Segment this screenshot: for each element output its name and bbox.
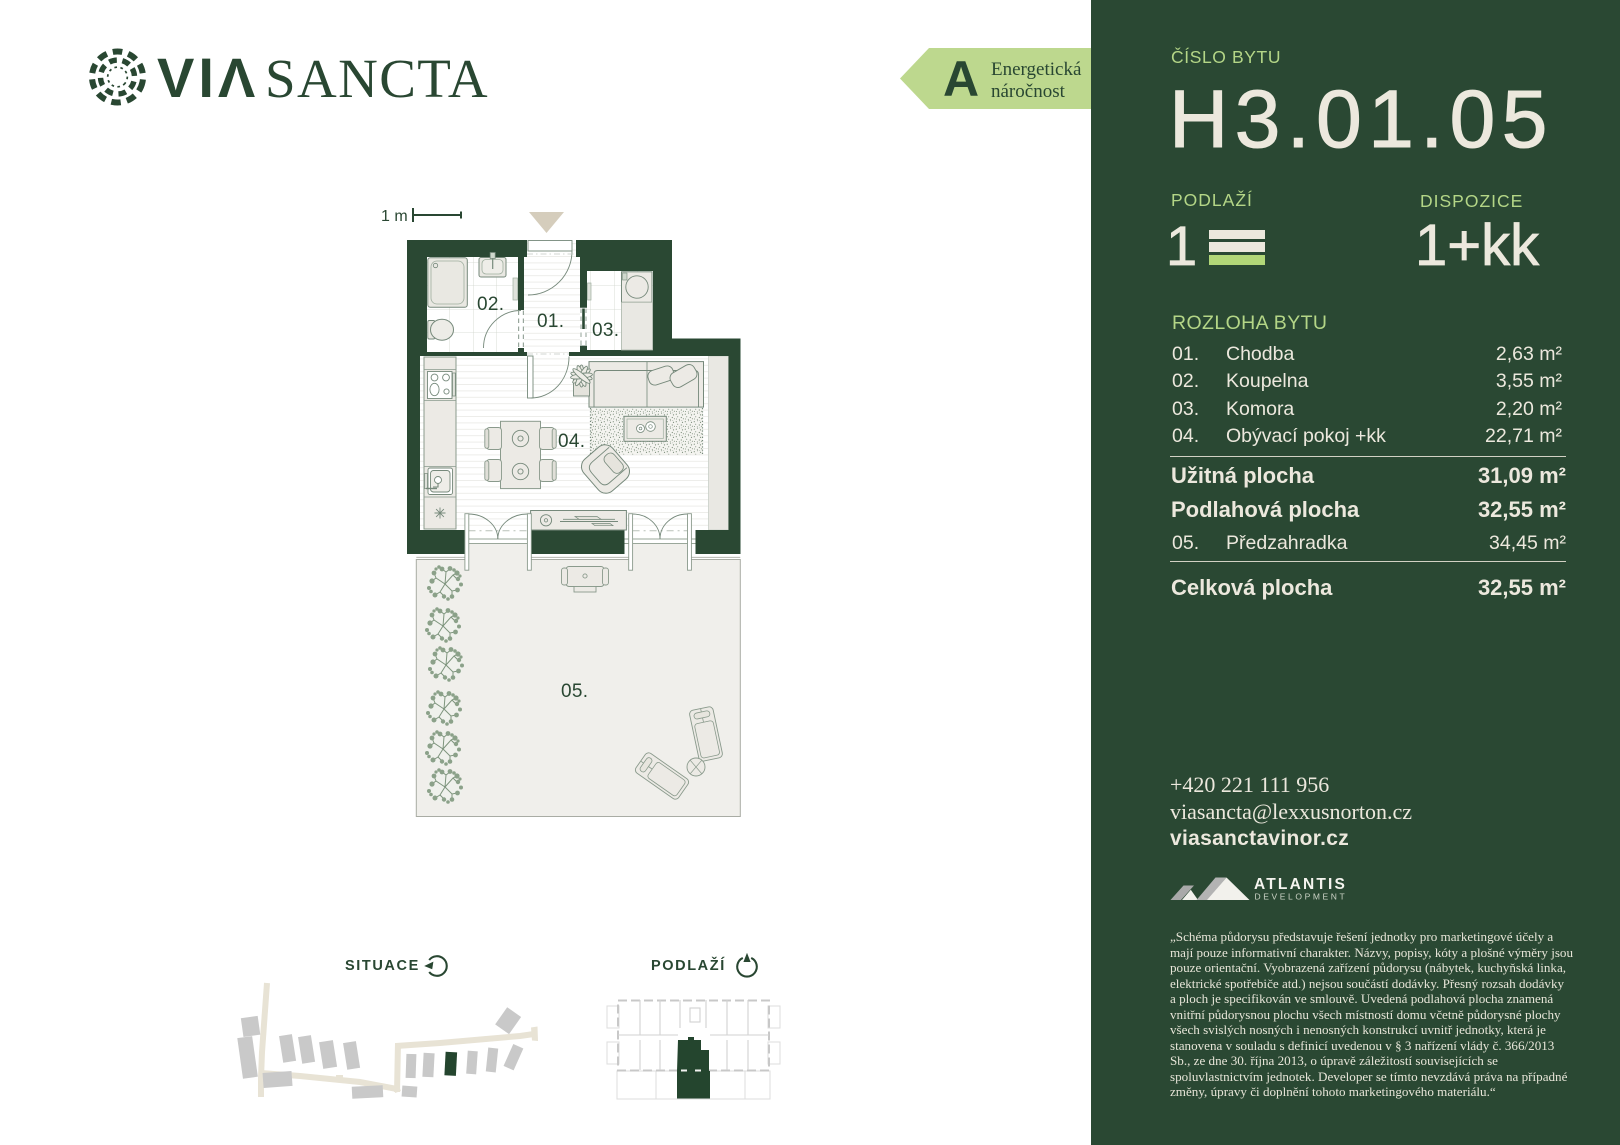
svg-text:Energetická: Energetická (991, 59, 1082, 80)
svg-text:VIΛ: VIΛ (157, 48, 259, 109)
svg-text:náročnost: náročnost (991, 81, 1066, 102)
svg-text:ATLANTIS: ATLANTIS (1254, 876, 1347, 893)
svg-text:03.: 03. (592, 320, 619, 341)
svg-text:A: A (943, 51, 979, 107)
svg-text:DEVELOPMENT: DEVELOPMENT (1255, 892, 1348, 902)
svg-text:04.: 04. (558, 431, 585, 452)
svg-text:SANCTA: SANCTA (265, 48, 489, 109)
svg-text:05.: 05. (561, 681, 588, 702)
svg-text:01.: 01. (537, 311, 564, 332)
svg-text:1 m: 1 m (381, 208, 408, 225)
svg-text:02.: 02. (477, 294, 504, 315)
